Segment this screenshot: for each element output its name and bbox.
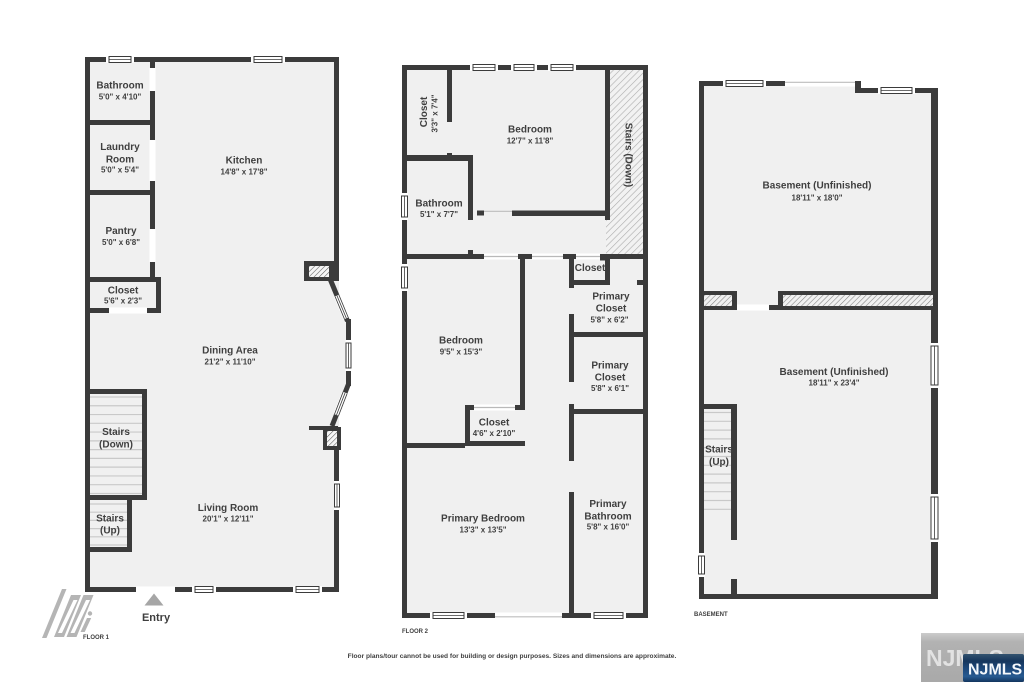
svg-text:(Up): (Up)	[100, 526, 120, 537]
svg-text:5'0" x 6'8": 5'0" x 6'8"	[102, 238, 140, 247]
svg-text:13'3" x 13'5": 13'3" x 13'5"	[460, 526, 507, 535]
svg-text:4'6" x 2'10": 4'6" x 2'10"	[473, 429, 516, 438]
svg-text:BASEMENT: BASEMENT	[694, 612, 728, 618]
svg-text:5'8" x 6'2": 5'8" x 6'2"	[590, 316, 628, 325]
svg-text:Bedroom: Bedroom	[439, 336, 483, 347]
svg-text:Stairs: Stairs	[102, 427, 130, 438]
svg-text:Living Room: Living Room	[198, 503, 259, 514]
svg-text:Closet: Closet	[479, 418, 510, 429]
svg-text:Closet: Closet	[108, 286, 139, 297]
svg-text:Stairs (Down): Stairs (Down)	[623, 123, 634, 187]
svg-text:NJMLS: NJMLS	[968, 662, 1023, 679]
svg-text:18'11" x 18'0": 18'11" x 18'0"	[792, 194, 843, 203]
svg-text:Stairs: Stairs	[705, 445, 733, 456]
svg-text:Floor plans/tour cannot be use: Floor plans/tour cannot be used for buil…	[348, 653, 677, 660]
svg-text:20'1" x 12'11": 20'1" x 12'11"	[203, 515, 254, 524]
svg-text:5'1" x 7'7": 5'1" x 7'7"	[420, 210, 458, 219]
svg-text:12'7" x 11'8": 12'7" x 11'8"	[507, 137, 554, 146]
svg-text:(Up): (Up)	[709, 457, 729, 468]
svg-text:5'8" x 16'0": 5'8" x 16'0"	[587, 523, 630, 532]
svg-text:Kitchen: Kitchen	[226, 156, 263, 167]
svg-text:Bathroom: Bathroom	[96, 81, 143, 92]
svg-text:9'5" x 15'3": 9'5" x 15'3"	[440, 348, 483, 357]
svg-text:Bedroom: Bedroom	[508, 125, 552, 136]
svg-text:5'0" x 5'4": 5'0" x 5'4"	[101, 165, 139, 174]
svg-text:Room: Room	[106, 154, 134, 165]
svg-text:(Down): (Down)	[99, 440, 133, 451]
svg-text:FLOOR 1: FLOOR 1	[83, 635, 110, 641]
svg-text:Basement (Unfinished): Basement (Unfinished)	[763, 181, 872, 192]
svg-text:Dining Area: Dining Area	[202, 346, 258, 357]
svg-text:5'8" x 6'1": 5'8" x 6'1"	[591, 384, 629, 393]
svg-text:Closet: Closet	[595, 373, 626, 384]
svg-text:Bathroom: Bathroom	[415, 199, 462, 210]
svg-text:Stairs: Stairs	[96, 514, 124, 525]
svg-text:18'11" x 23'4": 18'11" x 23'4"	[809, 379, 860, 388]
svg-text:21'2" x 11'10": 21'2" x 11'10"	[205, 358, 256, 367]
svg-text:Bathroom: Bathroom	[584, 512, 631, 523]
svg-text:14'8" x 17'8": 14'8" x 17'8"	[221, 168, 268, 177]
svg-text:Closet: Closet	[596, 304, 627, 315]
svg-text:Laundry: Laundry	[100, 142, 140, 153]
svg-text:Primary: Primary	[592, 292, 630, 303]
svg-text:Primary: Primary	[589, 499, 627, 510]
svg-text:Primary Bedroom: Primary Bedroom	[441, 514, 525, 525]
svg-text:Basement (Unfinished): Basement (Unfinished)	[780, 367, 889, 378]
svg-text:Closet: Closet	[419, 96, 430, 127]
svg-text:5'0" x 4'10": 5'0" x 4'10"	[99, 93, 142, 102]
svg-text:5'6" x 2'3": 5'6" x 2'3"	[104, 297, 142, 306]
svg-text:Closet: Closet	[575, 263, 606, 274]
svg-text:Primary: Primary	[591, 361, 629, 372]
svg-text:3'3" x 7'4": 3'3" x 7'4"	[431, 94, 440, 132]
svg-text:Entry: Entry	[142, 612, 171, 624]
svg-text:FLOOR 2: FLOOR 2	[402, 629, 429, 635]
svg-text:Pantry: Pantry	[105, 226, 137, 237]
